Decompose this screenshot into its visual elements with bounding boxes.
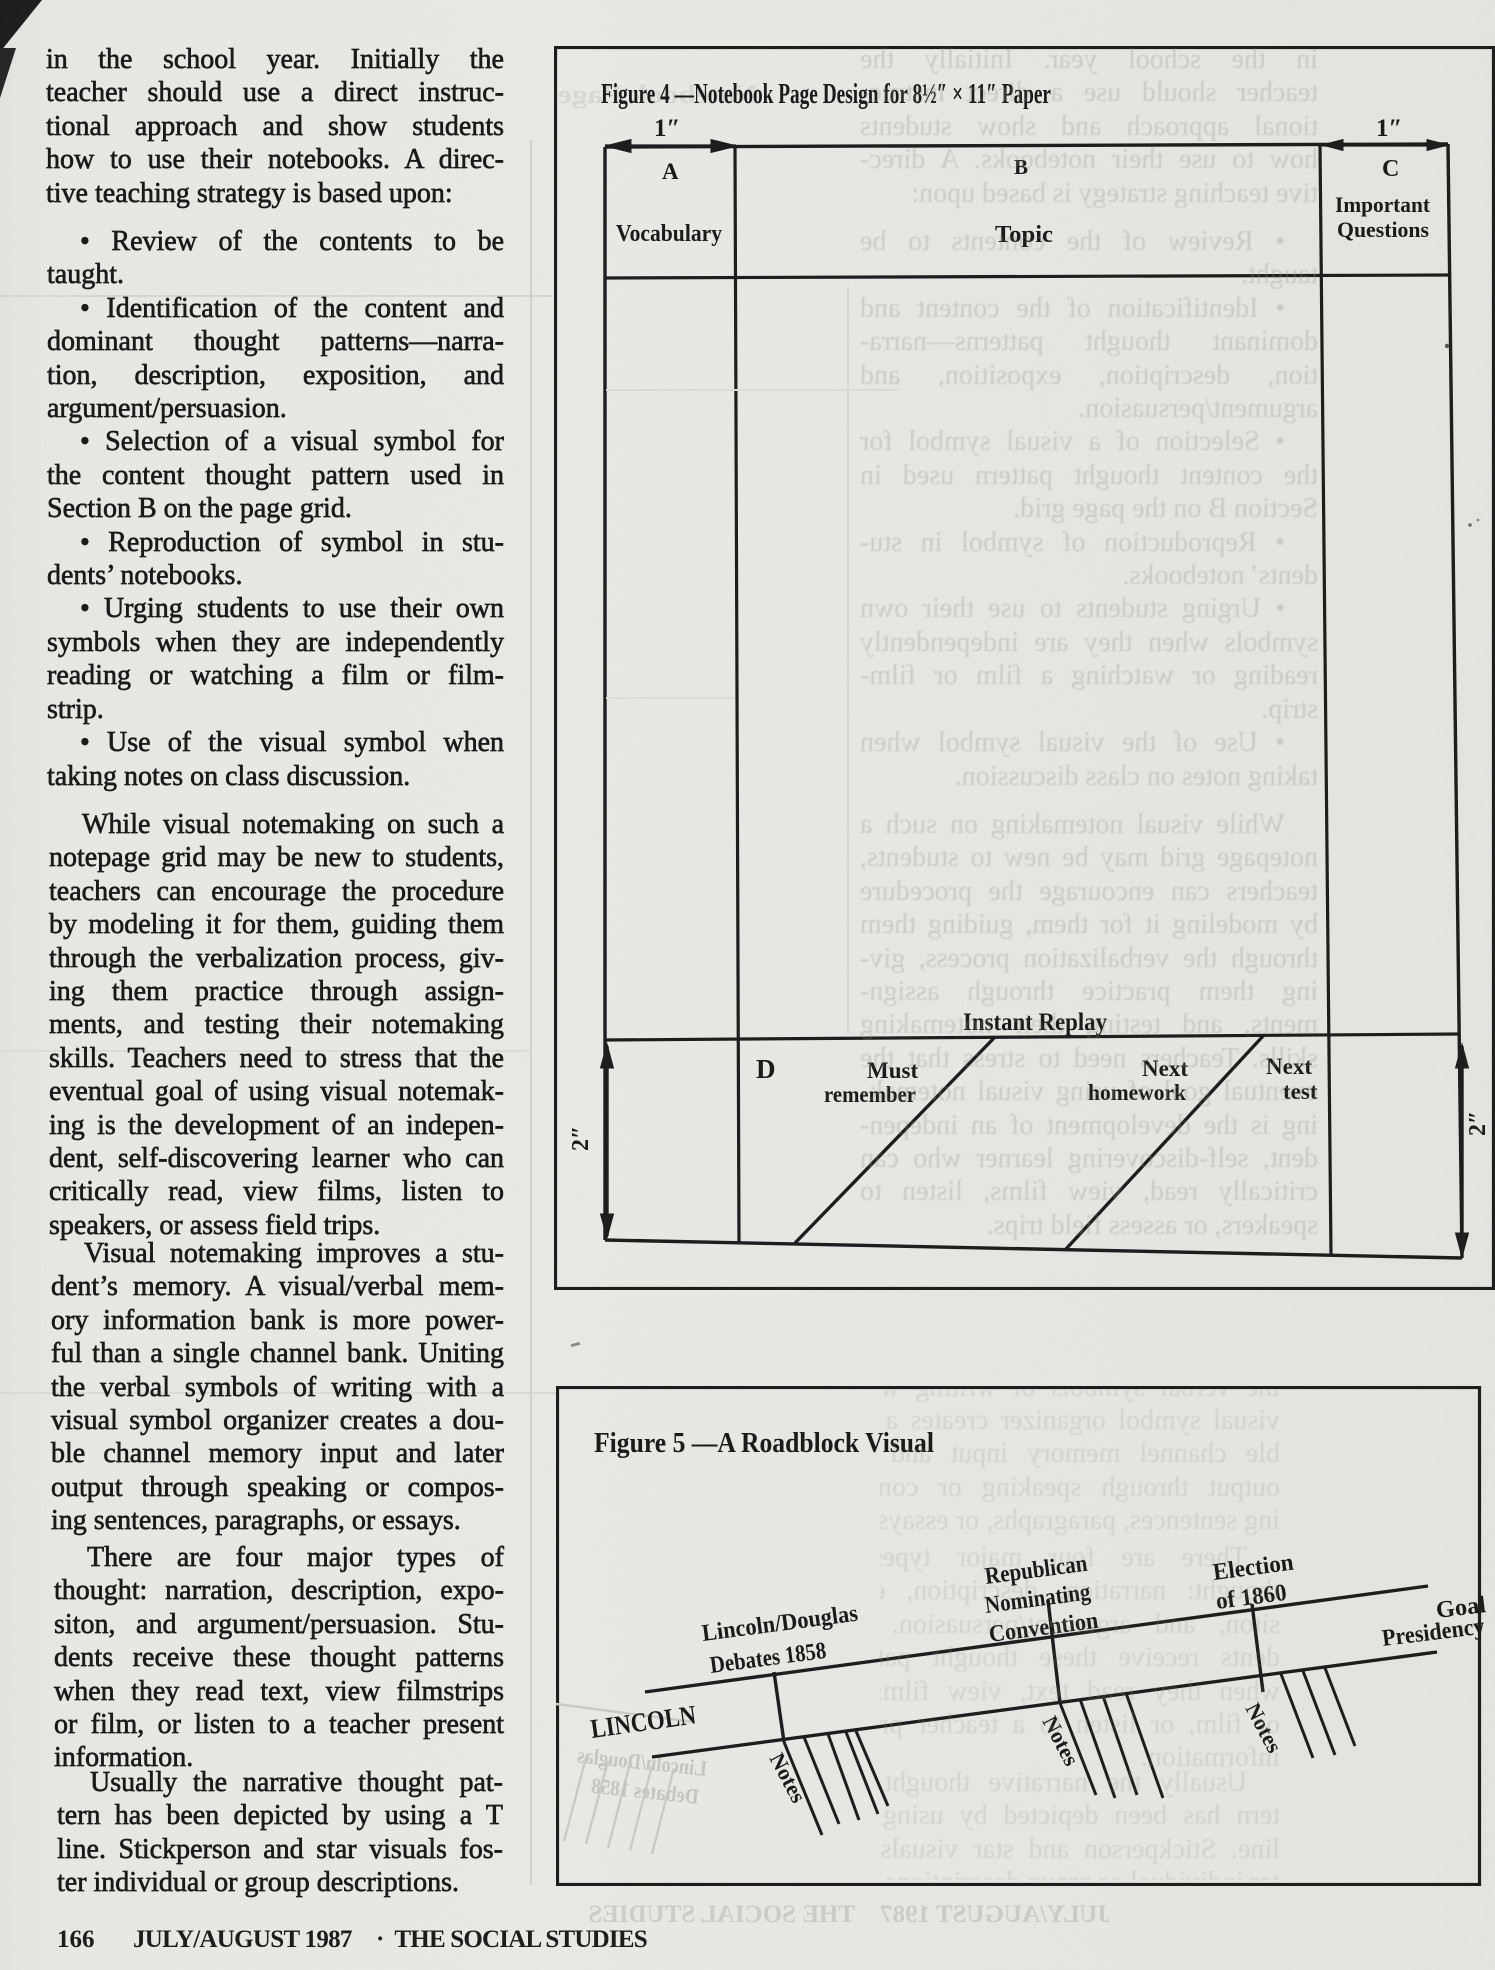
svg-text:D: D [756, 1054, 776, 1084]
svg-text:2″: 2″ [1465, 1111, 1491, 1136]
svg-text:Important: Important [1335, 192, 1431, 217]
svg-text:LINCOLN: LINCOLN [589, 1699, 699, 1744]
svg-text:Lincoln/Douglas: Lincoln/Douglas [700, 1601, 859, 1647]
svg-text:A: A [662, 159, 679, 184]
svg-text:Vocabulary: Vocabulary [616, 221, 722, 247]
svg-text:1″: 1″ [654, 115, 680, 142]
svg-text:1″: 1″ [1376, 115, 1402, 142]
svg-text:Debates 1858: Debates 1858 [708, 1638, 827, 1679]
svg-text:Notes: Notes [765, 1749, 812, 1808]
svg-text:2″: 2″ [568, 1126, 594, 1151]
svg-text:Questions: Questions [1337, 217, 1429, 242]
svg-text:C: C [1382, 156, 1399, 182]
svg-text:Presidency: Presidency [1381, 1614, 1486, 1652]
